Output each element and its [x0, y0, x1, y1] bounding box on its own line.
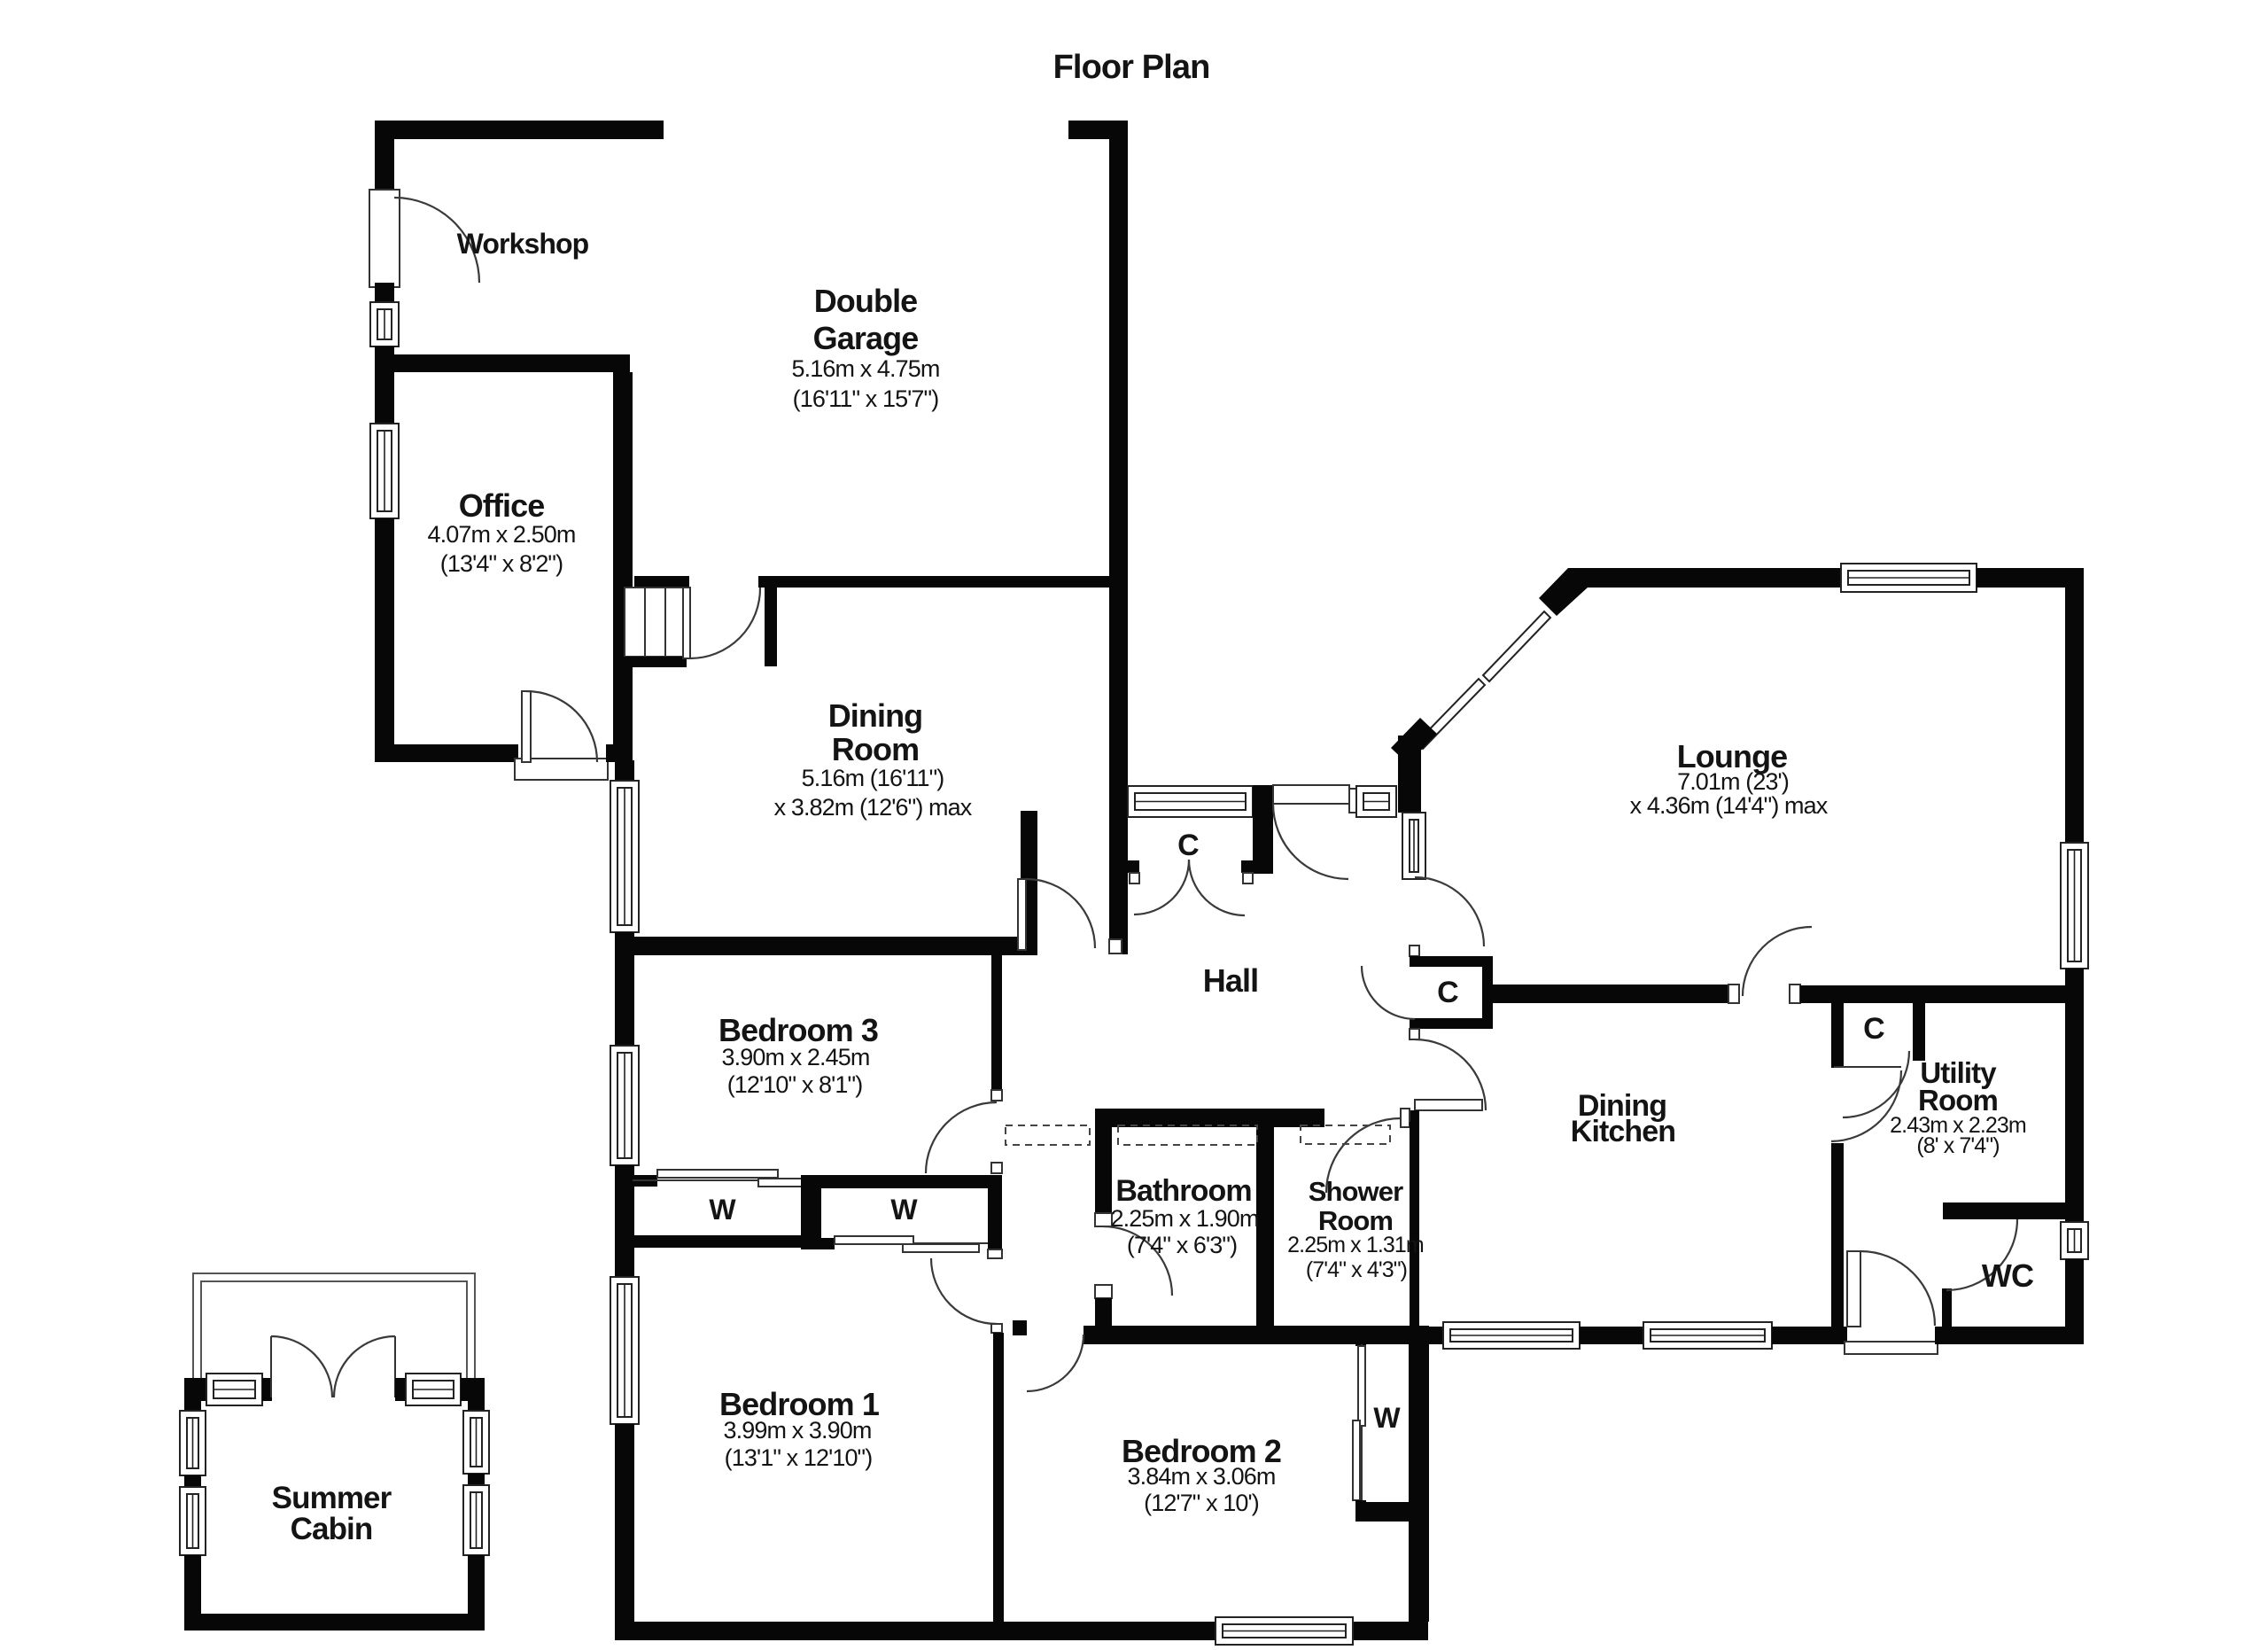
svg-text:2.25m x 1.90m: 2.25m x 1.90m — [1111, 1205, 1259, 1232]
svg-text:W: W — [890, 1194, 918, 1226]
svg-text:(8' x 7'4"): (8' x 7'4") — [1916, 1133, 1999, 1158]
svg-text:Double: Double — [814, 283, 918, 319]
svg-text:C: C — [1177, 829, 1199, 862]
svg-text:7.01m (23'): 7.01m (23') — [1677, 768, 1789, 795]
svg-text:Office: Office — [459, 487, 545, 524]
svg-text:W: W — [709, 1194, 736, 1226]
svg-text:Kitchen: Kitchen — [1571, 1115, 1675, 1148]
svg-text:(13'1" x 12'10"): (13'1" x 12'10") — [725, 1444, 873, 1471]
svg-text:Bedroom 3: Bedroom 3 — [718, 1012, 878, 1048]
svg-text:2.25m x 1.31m: 2.25m x 1.31m — [1287, 1233, 1424, 1257]
svg-text:3.90m x 2.45m: 3.90m x 2.45m — [722, 1044, 870, 1070]
svg-text:W: W — [1373, 1402, 1401, 1434]
svg-text:Summer: Summer — [272, 1481, 392, 1515]
svg-text:(12'10" x 8'1"): (12'10" x 8'1") — [727, 1071, 863, 1098]
svg-text:Room: Room — [1918, 1084, 1998, 1117]
svg-text:Bathroom: Bathroom — [1115, 1174, 1251, 1208]
svg-text:3.84m x 3.06m: 3.84m x 3.06m — [1128, 1463, 1276, 1490]
svg-text:Room: Room — [832, 731, 919, 767]
svg-text:WC: WC — [1982, 1257, 2034, 1294]
svg-text:5.16m x 4.75m: 5.16m x 4.75m — [792, 355, 940, 382]
svg-text:Shower: Shower — [1309, 1176, 1403, 1207]
svg-text:Dining: Dining — [828, 697, 923, 734]
svg-text:C: C — [1437, 976, 1458, 1009]
svg-text:C: C — [1863, 1012, 1884, 1046]
svg-text:Floor Plan: Floor Plan — [1053, 49, 1210, 86]
svg-text:Cabin: Cabin — [291, 1512, 373, 1546]
svg-text:(12'7" x 10'): (12'7" x 10') — [1144, 1490, 1259, 1516]
svg-text:5.16m (16'11"): 5.16m (16'11") — [802, 765, 944, 791]
svg-text:(7'4" x 6'3"): (7'4" x 6'3") — [1127, 1232, 1237, 1258]
svg-text:Garage: Garage — [813, 320, 919, 356]
svg-text:Hall: Hall — [1203, 962, 1258, 999]
svg-text:(7'4" x 4'3"): (7'4" x 4'3") — [1306, 1257, 1407, 1282]
svg-text:4.07m x 2.50m: 4.07m x 2.50m — [428, 521, 576, 548]
svg-text:Room: Room — [1318, 1205, 1393, 1236]
svg-text:x 3.82m (12'6") max: x 3.82m (12'6") max — [774, 794, 973, 821]
svg-text:(16'11" x 15'7"): (16'11" x 15'7") — [793, 385, 939, 412]
svg-text:(13'4" x 8'2"): (13'4" x 8'2") — [440, 550, 563, 577]
svg-text:3.99m x 3.90m: 3.99m x 3.90m — [724, 1417, 872, 1444]
svg-text:x 4.36m (14'4") max: x 4.36m (14'4") max — [1630, 792, 1829, 819]
svg-text:Workshop: Workshop — [457, 228, 589, 260]
